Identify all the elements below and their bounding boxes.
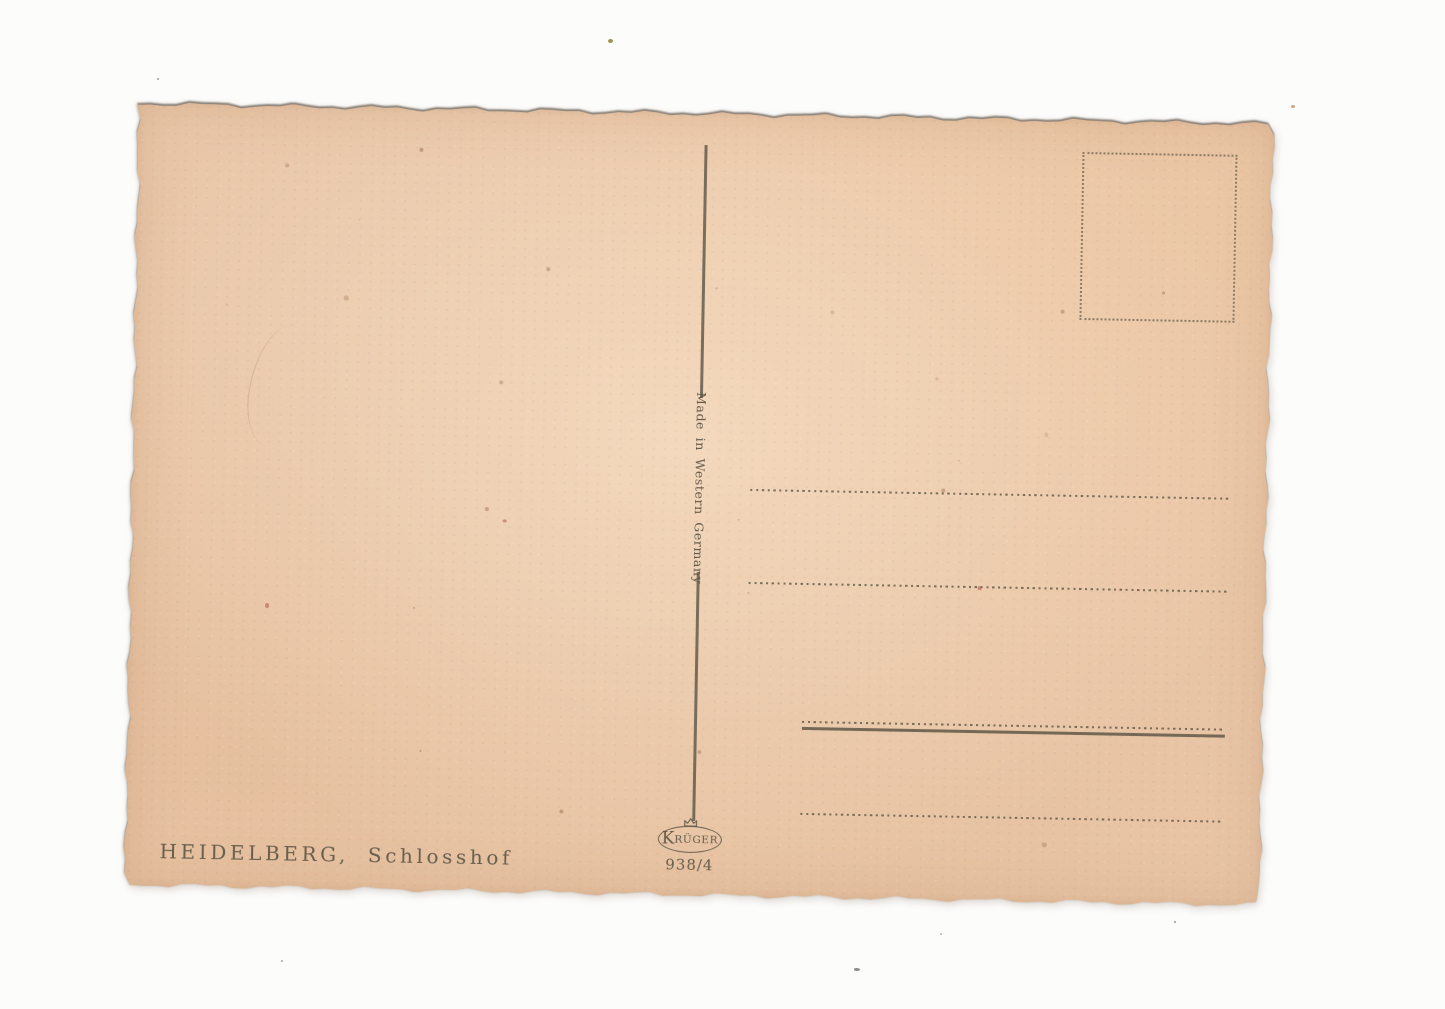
paper-freckle bbox=[265, 603, 269, 608]
dust-speck bbox=[1291, 105, 1295, 108]
dust-speck bbox=[157, 78, 159, 80]
address-line-2 bbox=[749, 582, 1229, 593]
paper-freckle bbox=[738, 519, 740, 521]
made-in-western-germany-text: Made in Western Germany bbox=[686, 400, 714, 576]
paper-freckles bbox=[137, 102, 1275, 123]
paper-scratch bbox=[240, 318, 326, 453]
paper-freckle bbox=[344, 295, 349, 300]
paper-freckle bbox=[419, 148, 423, 152]
dust-speck bbox=[281, 960, 283, 962]
logo-oval: KRÜGER bbox=[658, 825, 722, 853]
paper-freckle bbox=[413, 607, 415, 609]
divider-line-top bbox=[700, 145, 708, 398]
paper-freckle bbox=[1061, 310, 1065, 314]
paper-freckle bbox=[358, 219, 360, 221]
logo-text: RÜGER bbox=[674, 833, 718, 846]
paper-freckle bbox=[559, 809, 563, 813]
paper-freckle bbox=[1044, 432, 1048, 437]
catalog-number: 938/4 bbox=[647, 855, 731, 875]
paper-freckle bbox=[935, 377, 938, 380]
address-line-1 bbox=[750, 489, 1230, 500]
paper-freckle bbox=[831, 310, 835, 314]
postcard-caption: HEIDELBERG, Schlosshof bbox=[159, 839, 513, 869]
paper-freckle bbox=[958, 460, 960, 462]
paper-freckle bbox=[499, 380, 503, 384]
paper-freckle bbox=[419, 750, 421, 752]
paper-freckle bbox=[1042, 842, 1047, 847]
stamp-box bbox=[1079, 152, 1237, 323]
paper-freckle bbox=[715, 287, 718, 289]
logo-initial: K bbox=[661, 830, 674, 847]
dust-speck bbox=[1174, 921, 1176, 923]
postcard-paper: Made in Western Germany KRÜGER 938/4 HEI… bbox=[123, 102, 1275, 908]
dust-speck bbox=[854, 968, 860, 971]
paper-freckle bbox=[226, 303, 228, 305]
paper-freckle bbox=[546, 267, 550, 271]
paper-freckle bbox=[485, 507, 489, 511]
paper-freckle bbox=[503, 519, 507, 522]
postcard-back: Made in Western Germany KRÜGER 938/4 HEI… bbox=[123, 102, 1275, 908]
divider-line-bottom bbox=[692, 572, 700, 821]
address-line-4 bbox=[800, 813, 1223, 823]
paper-freckle bbox=[697, 750, 701, 754]
dust-speck bbox=[608, 39, 613, 43]
paper-freckle bbox=[285, 163, 289, 167]
scan-background: Made in Western Germany KRÜGER 938/4 HEI… bbox=[0, 0, 1445, 1009]
dust-speck bbox=[940, 933, 942, 935]
paper-freckle bbox=[747, 592, 749, 594]
